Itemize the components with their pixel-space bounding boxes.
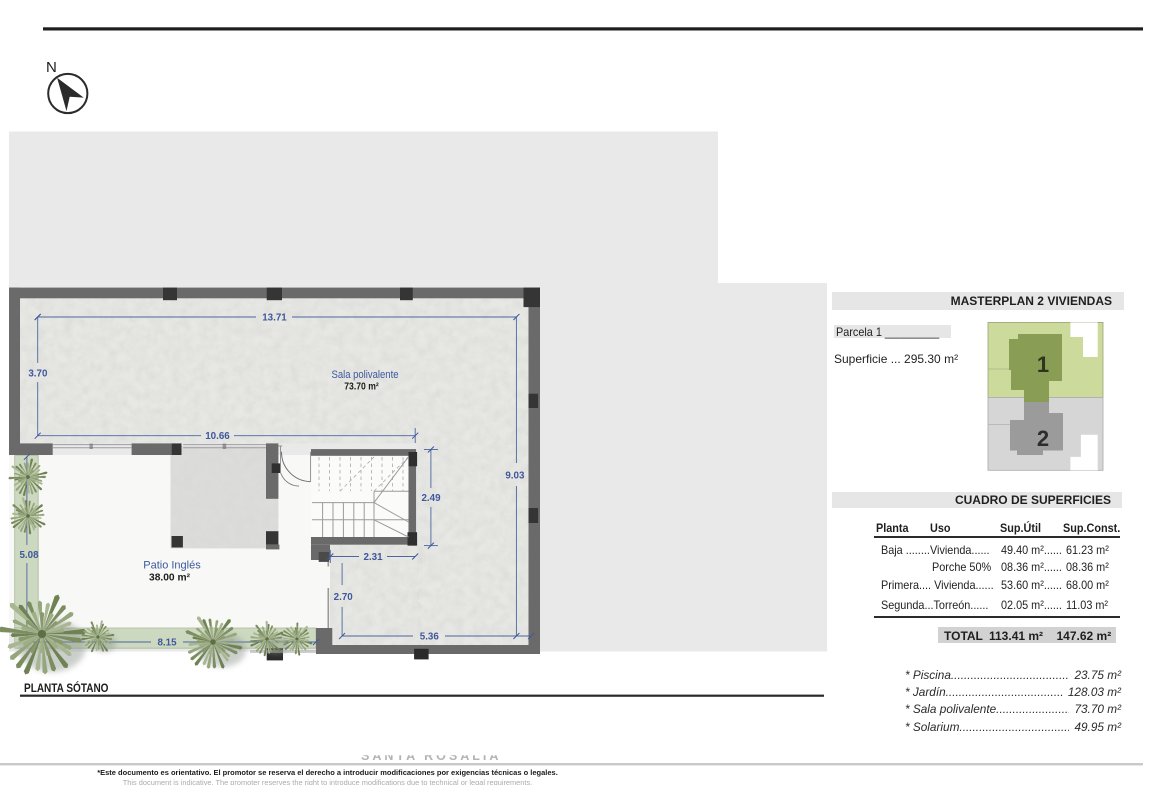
svg-text:38.00 m²: 38.00 m² (149, 572, 191, 583)
svg-text:5.08: 5.08 (19, 550, 39, 561)
svg-text:2.31: 2.31 (363, 552, 383, 563)
svg-text:5.36: 5.36 (420, 631, 440, 642)
svg-text:Patio Inglés: Patio Inglés (143, 560, 201, 572)
svg-text:Sala polivalente: Sala polivalente (332, 369, 399, 381)
svg-text:10.66: 10.66 (205, 431, 230, 442)
svg-text:N: N (46, 59, 57, 76)
svg-text:2: 2 (1037, 426, 1049, 451)
svg-text:1: 1 (1037, 352, 1049, 377)
svg-text:9.03: 9.03 (505, 471, 525, 482)
svg-text:2.70: 2.70 (334, 592, 354, 603)
svg-text:73.70 m²: 73.70 m² (344, 381, 379, 392)
svg-text:8.15: 8.15 (157, 637, 177, 648)
svg-text:3.70: 3.70 (28, 369, 48, 380)
svg-text:13.71: 13.71 (262, 313, 287, 324)
svg-text:2.49: 2.49 (421, 493, 441, 504)
